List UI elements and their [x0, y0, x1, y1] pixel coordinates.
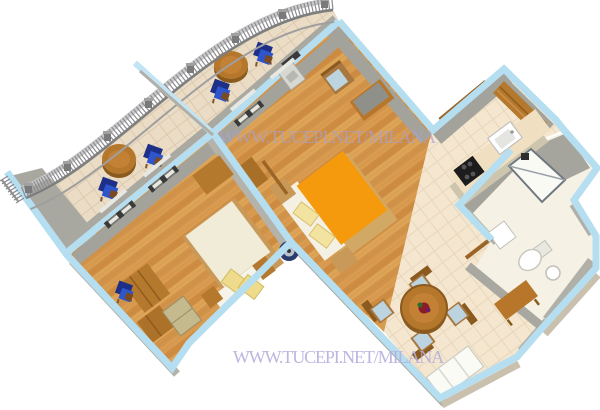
svg-text:WWW.TUCEPI.NET/MILANA: WWW.TUCEPI.NET/MILANA — [219, 127, 436, 147]
svg-text:WWW.TUCEPI.NET/MILANA: WWW.TUCEPI.NET/MILANA — [233, 347, 444, 367]
